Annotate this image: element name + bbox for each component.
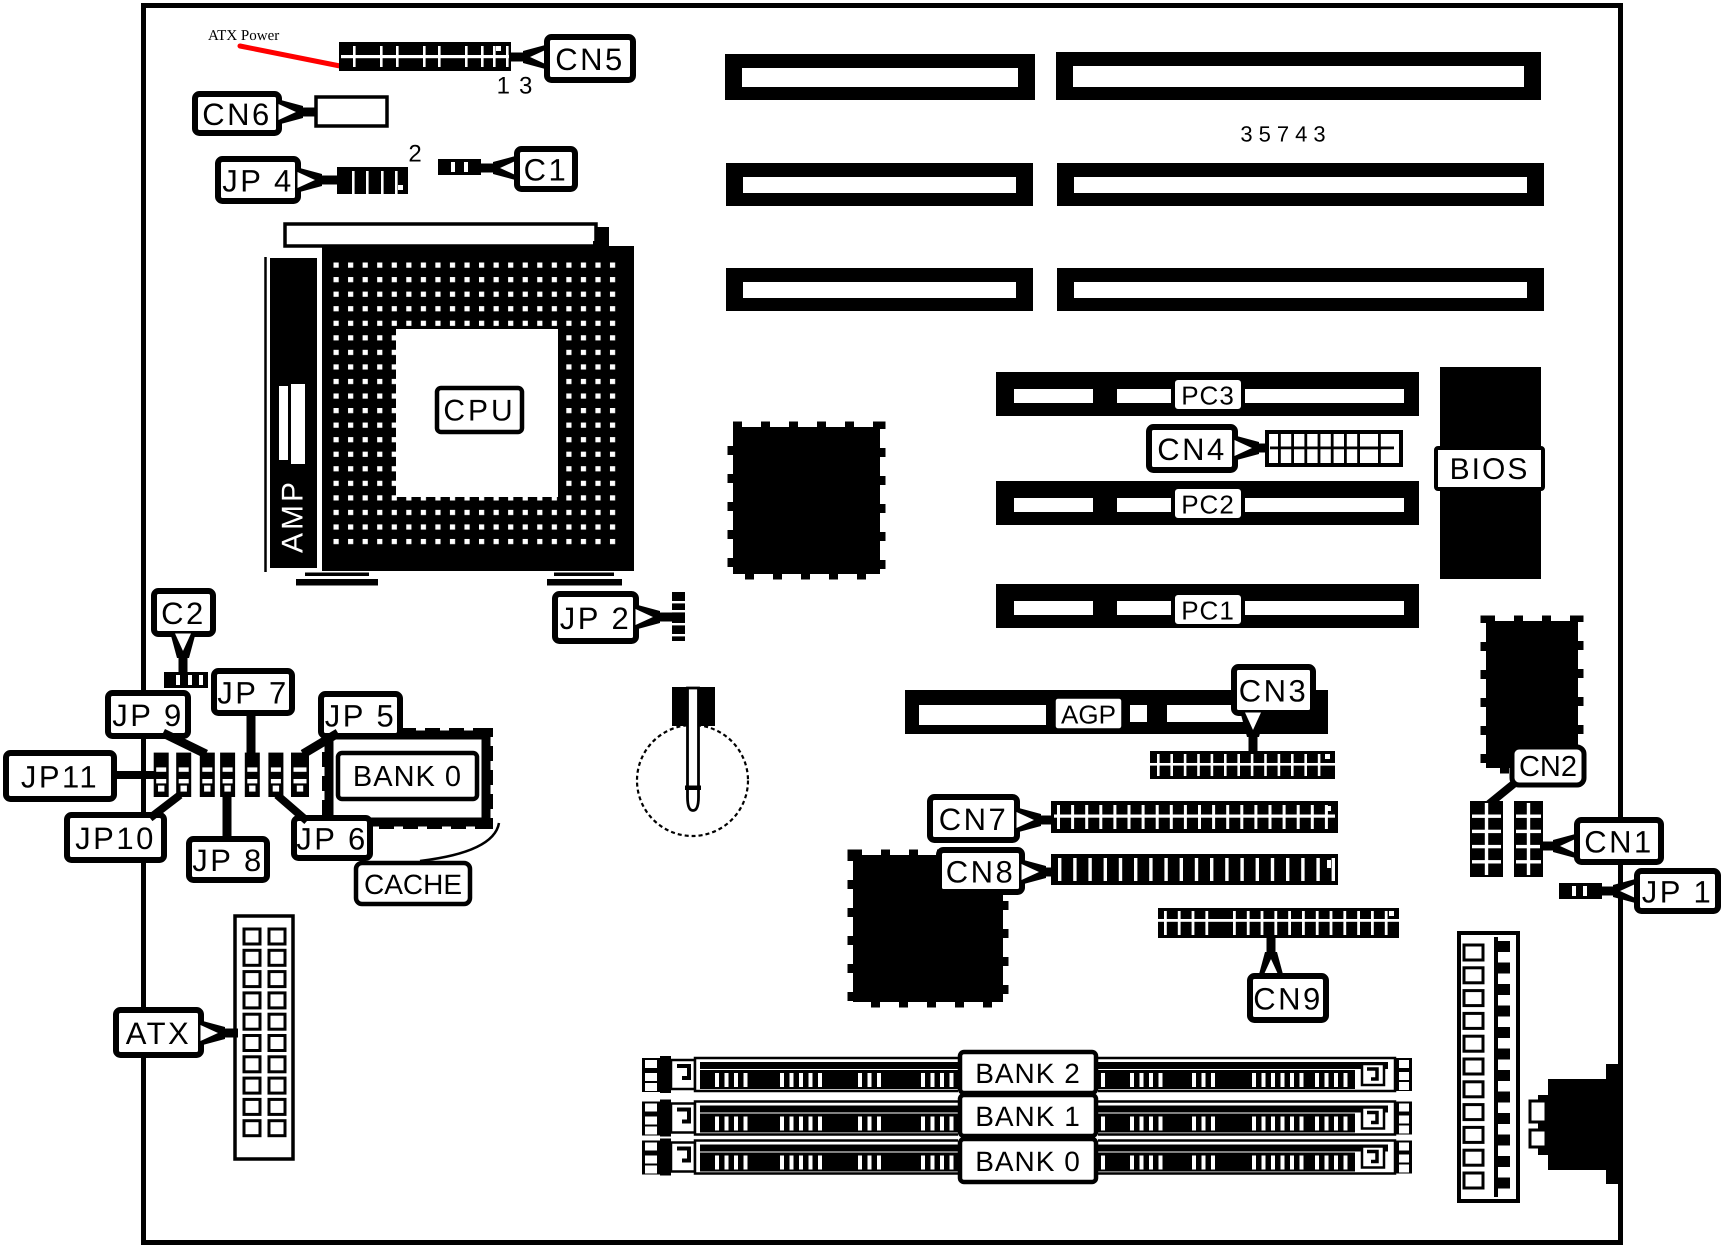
svg-text:CN5: CN5 <box>555 42 625 77</box>
svg-text:CN6: CN6 <box>202 97 272 132</box>
svg-text:CN9: CN9 <box>1253 982 1323 1017</box>
svg-text:ATX: ATX <box>126 1016 192 1051</box>
svg-text:35743: 35743 <box>1240 122 1331 147</box>
svg-text:BIOS: BIOS <box>1450 453 1530 486</box>
svg-text:CN2: CN2 <box>1519 751 1577 783</box>
svg-text:PC2: PC2 <box>1181 490 1235 520</box>
svg-text:JP 2: JP 2 <box>560 601 631 636</box>
svg-text:CN1: CN1 <box>1584 825 1654 860</box>
svg-text:BANK 0: BANK 0 <box>353 761 462 793</box>
svg-text:BANK 0: BANK 0 <box>975 1146 1081 1177</box>
svg-text:BANK 2: BANK 2 <box>975 1058 1081 1089</box>
svg-text:CPU: CPU <box>443 395 515 428</box>
svg-text:PC3: PC3 <box>1181 381 1235 411</box>
svg-text:JP 6: JP 6 <box>296 822 367 857</box>
svg-text:PC1: PC1 <box>1181 596 1235 626</box>
svg-text:ATX Power: ATX Power <box>208 28 279 44</box>
svg-text:JP 4: JP 4 <box>222 164 293 199</box>
svg-text:CN8: CN8 <box>946 855 1016 890</box>
svg-text:C1: C1 <box>524 153 569 188</box>
svg-text:C2: C2 <box>161 596 206 631</box>
svg-text:AMP: AMP <box>277 479 310 553</box>
svg-text:JP 7: JP 7 <box>217 676 288 711</box>
svg-text:CN7: CN7 <box>939 802 1009 837</box>
svg-text:13: 13 <box>497 73 542 100</box>
svg-text:JP 1: JP 1 <box>1642 875 1713 910</box>
svg-text:BANK 1: BANK 1 <box>975 1101 1081 1132</box>
svg-text:JP 5: JP 5 <box>325 699 396 734</box>
svg-text:CACHE: CACHE <box>364 869 462 900</box>
svg-text:JP10: JP10 <box>75 821 156 856</box>
svg-text:AGP: AGP <box>1061 700 1116 730</box>
svg-text:JP 9: JP 9 <box>112 698 183 733</box>
svg-text:CN4: CN4 <box>1157 432 1227 467</box>
svg-text:JP11: JP11 <box>21 760 99 795</box>
svg-text:CN3: CN3 <box>1239 674 1309 709</box>
svg-text:2: 2 <box>408 141 421 168</box>
svg-text:JP 8: JP 8 <box>192 843 263 878</box>
